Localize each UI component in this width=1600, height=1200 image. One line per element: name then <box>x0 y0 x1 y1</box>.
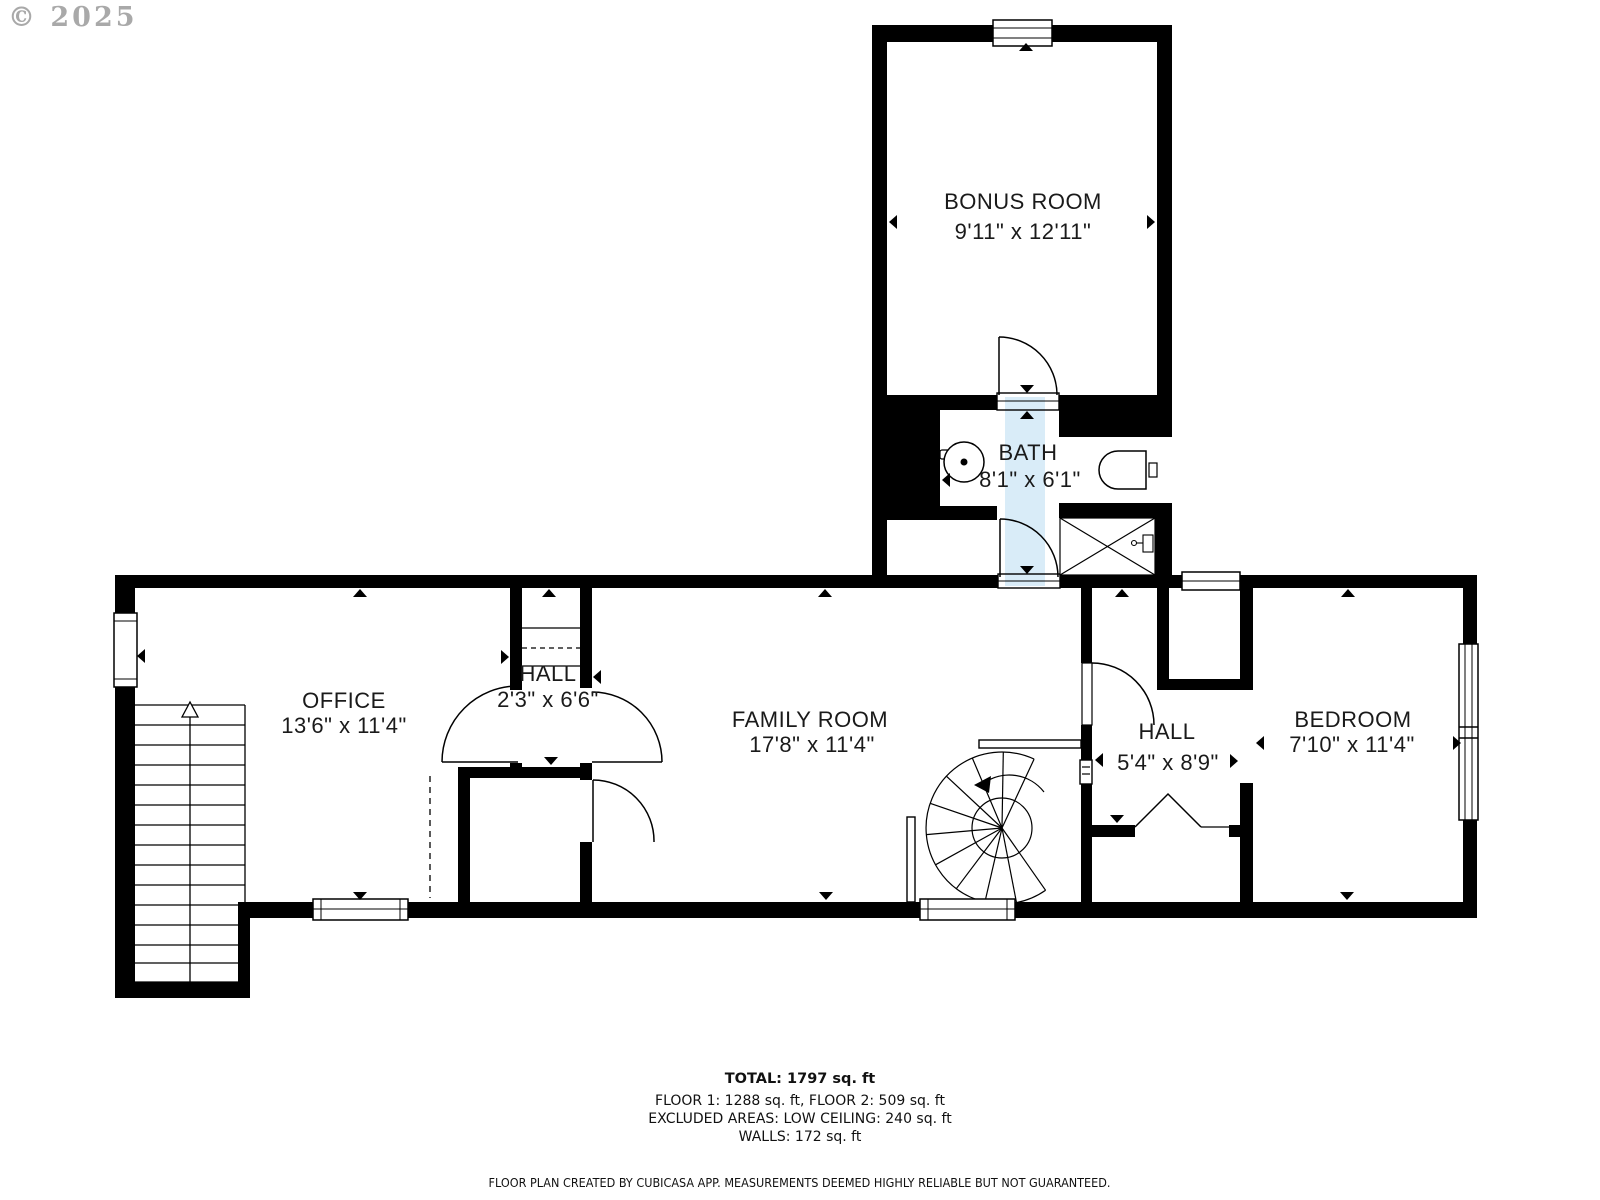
room-dims-office: 13'6" x 11'4" <box>281 713 407 738</box>
office-bottom-window <box>313 899 408 920</box>
windows <box>114 20 1478 920</box>
footer-disclaimer-text: FLOOR PLAN CREATED BY CUBICASA APP. MEAS… <box>489 1175 1111 1190</box>
summary-total: TOTAL: 1797 sq. ft <box>0 1071 1600 1087</box>
floor-plan-page: © 2025 <box>0 0 1600 1200</box>
room-label-bonus: BONUS ROOM <box>944 189 1102 214</box>
hall-family-door <box>592 692 662 762</box>
dimension-arrows <box>137 43 1461 900</box>
closet-door <box>593 780 654 842</box>
room-label-bedroom: BEDROOM <box>1294 707 1411 732</box>
room-dims-bedroom: 7'10" x 11'4" <box>1289 732 1415 757</box>
floor-plan-drawing: BONUS ROOM 9'11" x 12'11" BATH 8'1" x 6'… <box>0 0 1600 1200</box>
room-label-bath: BATH <box>998 440 1057 465</box>
room-label-hall-upper: HALL <box>519 661 576 686</box>
bonus-room-window <box>993 20 1052 46</box>
room-dims-bonus: 9'11" x 12'11" <box>955 219 1092 244</box>
shower <box>1060 518 1155 575</box>
walls <box>115 25 1477 998</box>
family-room-bottom-window <box>920 899 1015 920</box>
footer-disclaimer: FLOOR PLAN CREATED BY CUBICASA APP. MEAS… <box>0 1174 1600 1192</box>
right-hall-door <box>1082 663 1154 725</box>
area-summary: TOTAL: 1797 sq. ft FLOOR 1: 1288 sq. ft,… <box>0 1071 1600 1146</box>
room-label-office: OFFICE <box>302 688 386 713</box>
bifold-closet-door <box>1135 794 1230 827</box>
toilet <box>1099 451 1157 489</box>
room-dims-family: 17'8" x 11'4" <box>749 732 875 757</box>
bedroom-right-window <box>1459 644 1478 820</box>
room-label-hall-right: HALL <box>1138 719 1195 744</box>
spiral-staircase <box>926 752 1046 904</box>
room-dims-hall-right: 5'4" x 8'9" <box>1117 750 1219 775</box>
closet-back-window <box>1182 572 1240 590</box>
summary-walls: WALLS: 172 sq. ft <box>0 1128 1600 1146</box>
summary-excluded: EXCLUDED AREAS: LOW CEILING: 240 sq. ft <box>0 1110 1600 1128</box>
main-staircase <box>135 702 245 982</box>
summary-floors: FLOOR 1: 1288 sq. ft, FLOOR 2: 509 sq. f… <box>0 1092 1600 1110</box>
office-left-window <box>114 613 137 687</box>
room-label-family: FAMILY ROOM <box>732 707 888 732</box>
room-dims-hall-upper: 2'3" x 6'6" <box>497 687 599 712</box>
spiral-direction-arrow <box>984 775 1044 792</box>
stairs-up-arrow <box>182 702 198 717</box>
room-dims-bath: 8'1" x 6'1" <box>979 467 1081 492</box>
